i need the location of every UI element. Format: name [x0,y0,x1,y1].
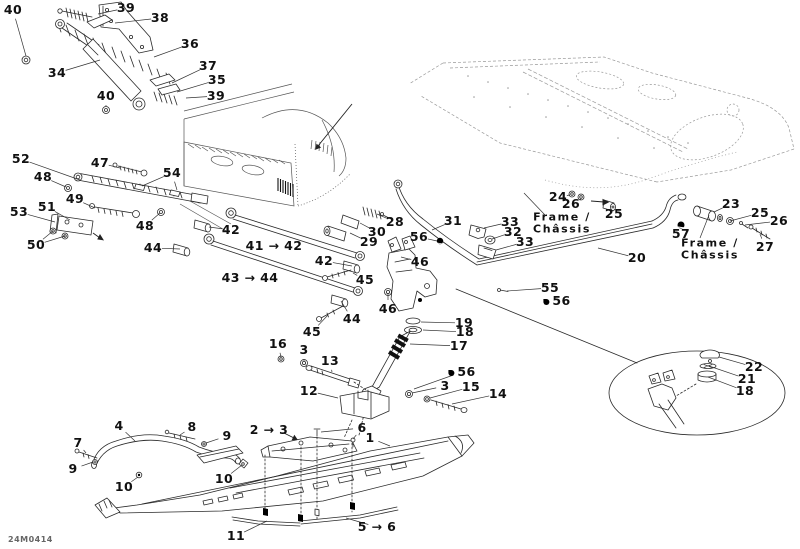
callout-26: 26 [770,214,788,228]
callout-27: 27 [756,240,774,254]
callout-48: 48 [136,219,154,233]
callout-8: 8 [187,420,196,434]
callout-46: 46 [411,255,429,269]
callout-3: 3 [299,343,308,357]
callout-3: 3 [440,379,449,393]
callout-43-44: 43 → 44 [222,271,279,285]
callout-28: 28 [386,215,404,229]
callout-17: 17 [450,339,468,353]
exploded-parts-diagram: 24M0414 40393836343735394052484754495351… [0,0,800,549]
callout-39: 39 [117,1,135,15]
callout-18: 18 [456,325,474,339]
callout-53: 53 [10,205,28,219]
callout-44: 44 [343,312,361,326]
callout-1: 1 [365,431,374,445]
callout-56: 56 [448,365,475,379]
ski-group [75,429,474,523]
callout-25: 25 [751,206,769,220]
drawing-code: 24M0414 [8,535,53,544]
callout-frame-châssis: Frame / Châssis [533,212,591,237]
callout-48: 48 [34,170,52,184]
callout-42: 42 [315,254,333,268]
callout-16: 16 [269,337,287,351]
callout-29: 29 [360,235,378,249]
callout-44: 44 [144,241,162,255]
callout-35: 35 [208,73,226,87]
callout-40: 40 [4,3,22,17]
callout-10: 10 [215,472,233,486]
callout-9: 9 [222,429,231,443]
loctite-drop-icon [448,370,454,376]
callout-31: 31 [444,214,462,228]
callout-11: 11 [227,529,245,543]
callout-38: 38 [151,11,169,25]
callout-7: 7 [73,436,82,450]
callout-25: 25 [605,207,623,221]
callout-46: 46 [379,302,397,316]
assembly-arrows [93,104,608,440]
callout-2-3: 2 → 3 [250,423,289,437]
callout-51: 51 [38,200,56,214]
callout-13: 13 [321,354,339,368]
callout-45: 45 [356,273,374,287]
callout-5-6: 5 → 6 [358,520,397,534]
callout-4: 4 [114,419,123,433]
loctite-drop-icon [543,299,549,305]
callout-42: 42 [222,223,240,237]
bulkhead [180,84,350,232]
callout-49: 49 [66,192,84,206]
callout-23: 23 [722,197,740,211]
callout-33: 33 [516,235,534,249]
callout-26: 26 [562,197,580,211]
callout-50: 50 [27,238,45,252]
callout-52: 52 [12,152,30,166]
callout-20: 20 [628,251,646,265]
callout-10: 10 [115,480,133,494]
callout-47: 47 [91,156,109,170]
callout-34: 34 [48,66,66,80]
callout-frame-châssis: Frame / Châssis [681,238,739,263]
callout-39: 39 [207,89,225,103]
callout-9: 9 [68,462,77,476]
callout-15: 15 [462,380,480,394]
callout-54: 54 [163,166,181,180]
diagram-artwork [0,0,800,549]
callout-14: 14 [489,387,507,401]
callout-36: 36 [181,37,199,51]
callout-18: 18 [736,384,754,398]
callout-12: 12 [300,384,318,398]
callout-37: 37 [199,59,217,73]
callout-40: 40 [97,89,115,103]
callout-41-42: 41 → 42 [246,239,303,253]
callout-56: 56 [410,230,428,244]
frame-outline [409,57,794,188]
callout-45: 45 [303,325,321,339]
callout-56: 56 [543,294,570,308]
